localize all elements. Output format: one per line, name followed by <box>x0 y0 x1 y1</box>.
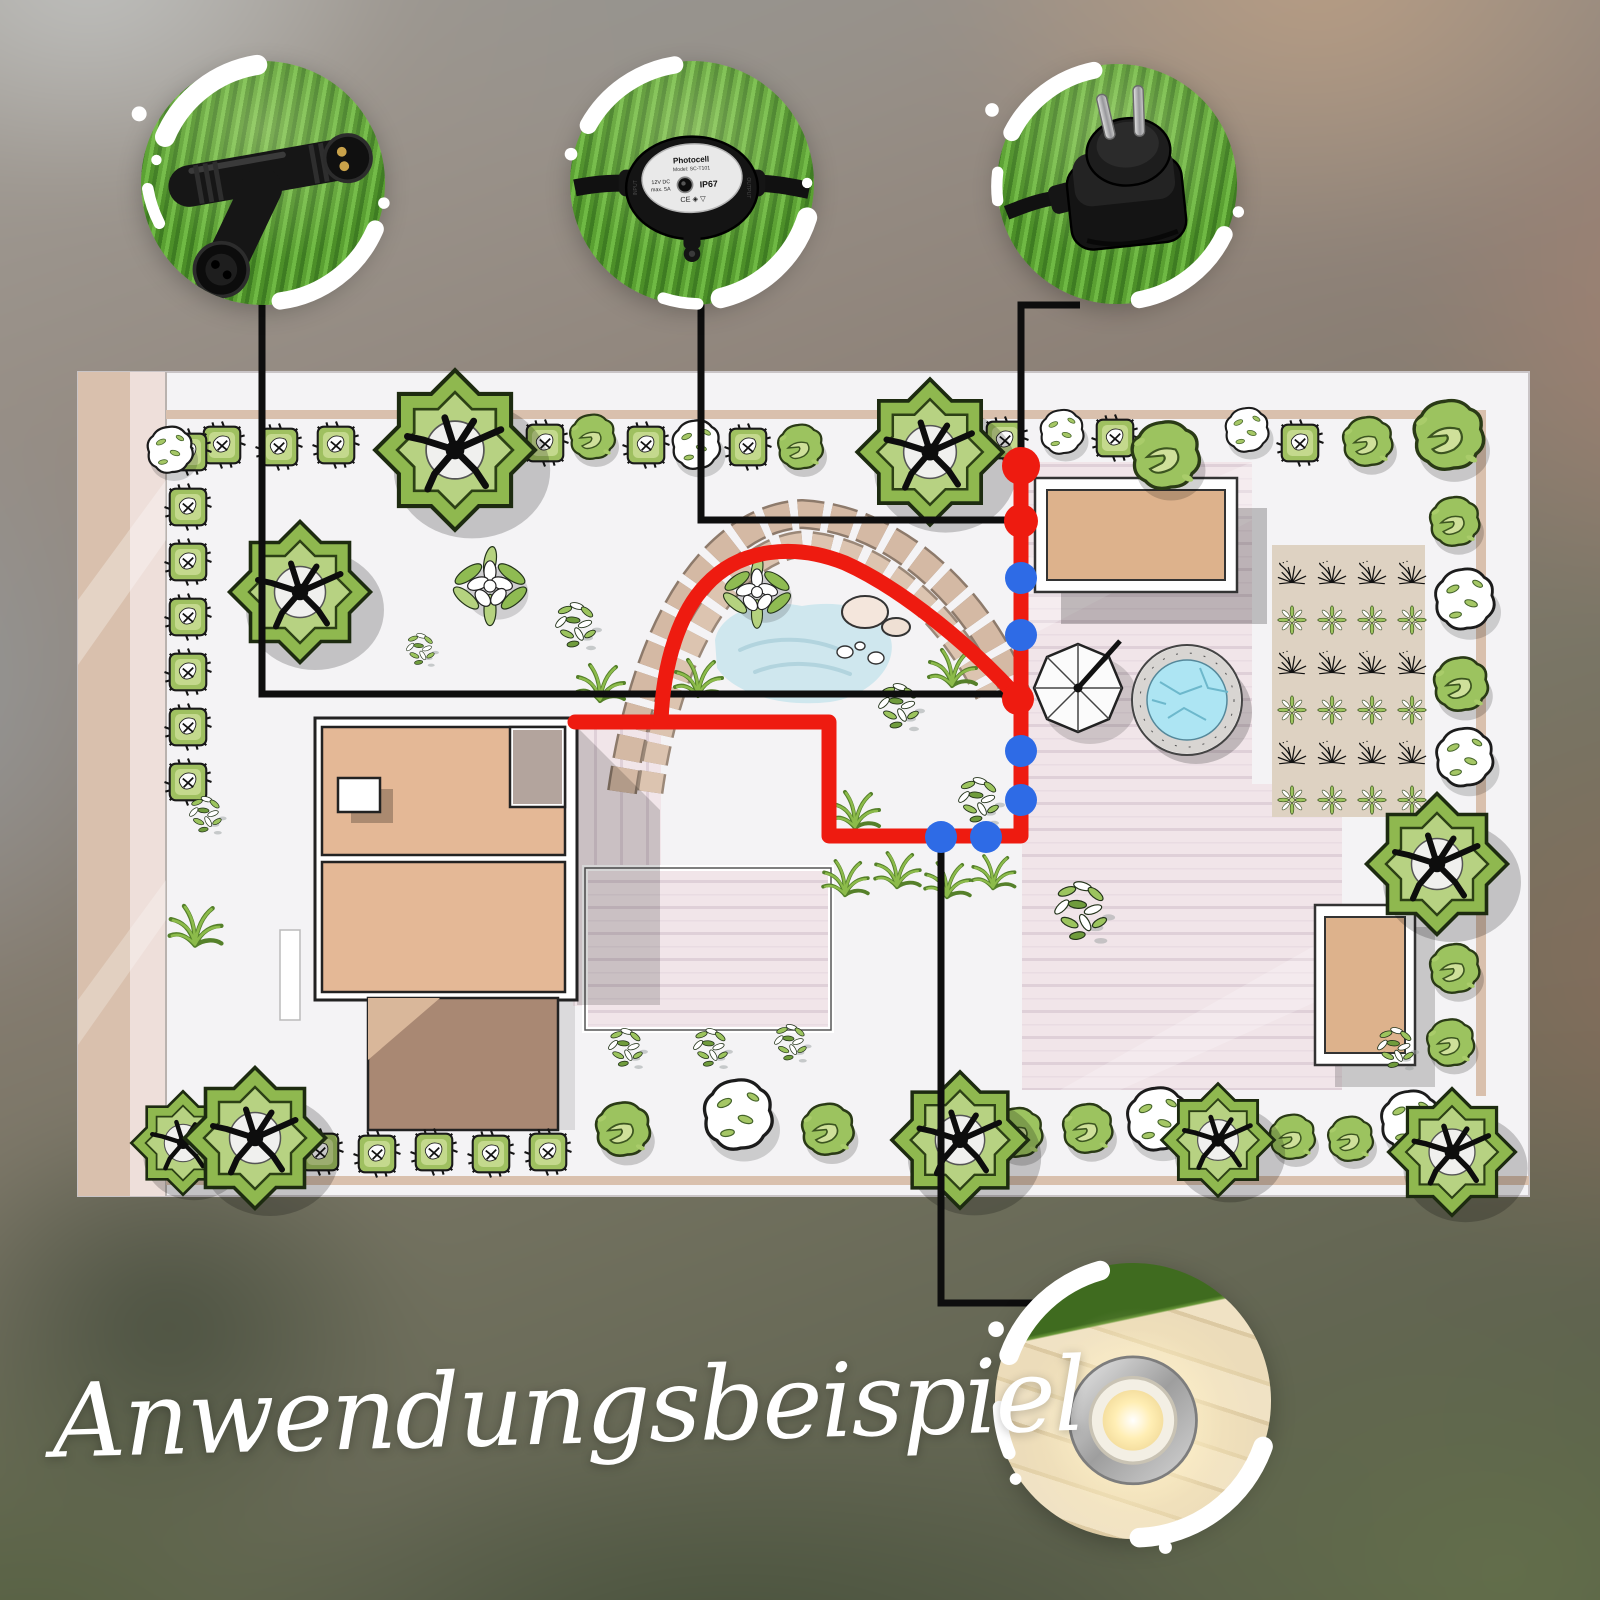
light-position-dot <box>1005 562 1037 594</box>
photocell-spec1: 12V DC <box>651 179 670 186</box>
photocell-input: INPUT <box>633 180 639 195</box>
callout-power-plug <box>997 64 1237 304</box>
light-position-dot <box>1005 784 1037 816</box>
photocell-photo: Photocell Model: SC-T101 12V DC max. 5A … <box>570 61 814 305</box>
callout-t-connector <box>141 61 385 305</box>
power-plug-photo <box>997 64 1237 304</box>
vegetable-garden <box>1272 545 1425 817</box>
connection-dot <box>1002 683 1034 715</box>
page-title: Anwendungsbeispiel <box>51 1341 874 1481</box>
callout-photocell: Photocell Model: SC-T101 12V DC max. 5A … <box>570 61 814 305</box>
light-position-dot <box>925 821 957 853</box>
photocell-graphic: Photocell Model: SC-T101 12V DC max. 5A … <box>570 61 814 305</box>
garden-table <box>1035 478 1267 624</box>
connection-dot <box>1002 447 1040 485</box>
t-connector-graphic <box>141 61 385 305</box>
application-example-graphic: Photocell Model: SC-T101 12V DC max. 5A … <box>0 0 1600 1600</box>
photocell-output: OUTPUT <box>745 177 751 198</box>
photocell-ip: IP67 <box>699 179 718 190</box>
photocell-title: Photocell <box>673 155 710 166</box>
light-position-dot <box>1005 619 1037 651</box>
photocell-marks: CE ◈ ▽ <box>680 194 706 204</box>
light-position-dot <box>970 821 1002 853</box>
light-position-dot <box>1005 735 1037 767</box>
t-connector-photo <box>141 61 385 305</box>
power-plug-graphic <box>997 64 1237 304</box>
connection-dot <box>1004 504 1038 538</box>
photocell-spec2: max. 5A <box>651 186 671 193</box>
